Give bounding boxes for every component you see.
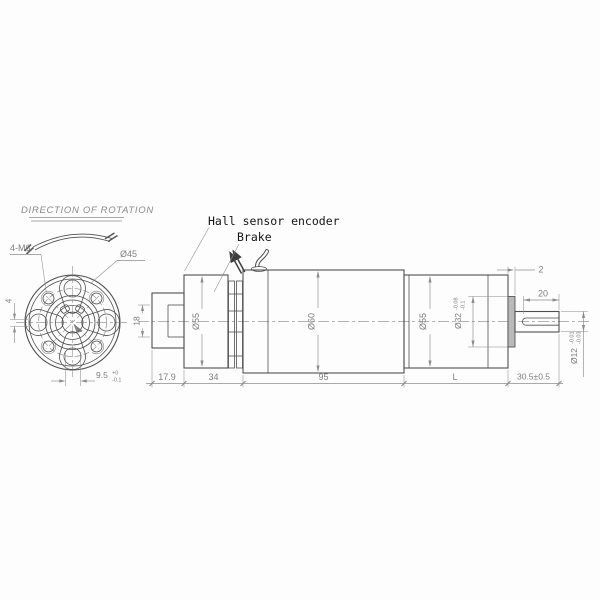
brake-leader-line (214, 244, 239, 292)
motor-wire (252, 250, 269, 272)
technical-drawing-page: DIRECTION OF ROTATION (0, 0, 600, 600)
direction-of-rotation-label: DIRECTION OF ROTATION (21, 205, 154, 216)
shaft-tol-low: -0.03 (577, 331, 583, 344)
hall-leader-line (185, 228, 210, 272)
rear-block (152, 293, 184, 348)
dim-shaft-flat: 20 (524, 289, 560, 315)
bolt-circle-label: Ø45 (120, 249, 137, 259)
pilot-tol-up: -0.08 (454, 297, 460, 310)
dim-motor-length: 95 (318, 372, 328, 382)
pilot-tol-low: -0.1 (461, 301, 467, 310)
pilot-dia-value: Ø32 (453, 313, 463, 329)
hall-sensor-encoder-label: Hall sensor encoder (208, 214, 340, 228)
length-dimension-chain: 17.9 34 95 L 30.5±0.5 (146, 334, 563, 388)
pilot-boss (508, 297, 515, 348)
encoder-dia-value: Ø55 (191, 313, 201, 330)
direction-underline (29, 218, 124, 222)
front-centerlines (16, 266, 129, 379)
dim-rear-hub: 18 (132, 305, 151, 337)
keyway-width-value: 4 (4, 298, 14, 303)
rear-hub-value: 18 (132, 316, 142, 326)
pilot-boss-value: 2 (538, 265, 543, 275)
bolt-spec-label: 4-M6 (10, 243, 31, 253)
shaft-tol-up: -0.01 (570, 331, 576, 344)
motor-dia-value: Ø60 (307, 313, 317, 330)
front-view: DIRECTION OF ROTATION (4, 205, 154, 386)
keyway-depth-value: 9.5 (96, 370, 108, 380)
gearmotor-drawing: DIRECTION OF ROTATION (0, 0, 600, 600)
keyway-depth-tol-low: -0.1 (112, 378, 121, 384)
dim-encoder-length: 34 (208, 372, 218, 382)
brake-stack (229, 281, 243, 368)
side-view: 18 Ø55 Hall sensor encoder Brake (132, 214, 593, 388)
brake-label: Brake (237, 230, 272, 244)
dim-rear-length: 17.9 (158, 372, 176, 382)
bolt-circle-callout: Ø45 (91, 249, 145, 283)
rotation-arc-arrow (25, 233, 118, 254)
dim-gearbox-length: L (452, 372, 457, 382)
dim-shaft-length: 30.5±0.5 (517, 372, 550, 382)
keyway-depth-tol-up: +0 (112, 371, 118, 377)
dim-pilot-boss: 2 (497, 265, 544, 296)
dim-motor-dia: Ø60 (307, 271, 320, 372)
gearbox-dia-value: Ø55 (418, 313, 428, 330)
dim-gearbox-dia: Ø55 (418, 276, 432, 367)
shaft-flat-value: 20 (538, 289, 548, 299)
dim-keyway-width: 4 (4, 298, 29, 343)
shaft-dia-value: Ø12 (569, 348, 579, 364)
